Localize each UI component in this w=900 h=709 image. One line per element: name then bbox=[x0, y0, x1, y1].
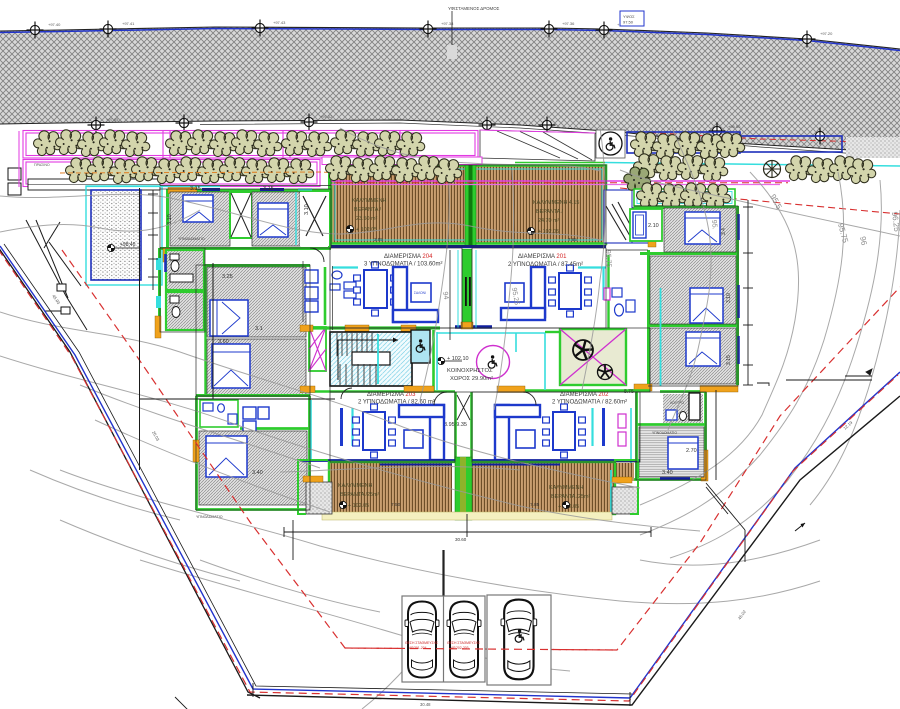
svg-text:3.1: 3.1 bbox=[255, 326, 263, 332]
svg-text:ΚΑΛΥΜΜΕΝΗ: ΚΑΛΥΜΜΕΝΗ bbox=[338, 483, 372, 489]
svg-text:+96.90: +96.90 bbox=[728, 124, 741, 129]
svg-text:3.25: 3.25 bbox=[222, 274, 233, 280]
svg-text:95.: 95. bbox=[710, 220, 718, 230]
svg-text:ΔΙΑΜΕΡΙΣΜΑ 204: ΔΙΑΜΕΡΙΣΜΑ 204 bbox=[384, 254, 433, 260]
svg-text:3.10: 3.10 bbox=[304, 204, 310, 215]
svg-text:3.60: 3.60 bbox=[218, 339, 229, 345]
svg-text:ΚΑΛΥΜΜΕΝΗ: ΚΑΛΥΜΜΕΝΗ bbox=[352, 198, 386, 204]
svg-text:30.48: 30.48 bbox=[420, 702, 431, 707]
svg-text:ΒΕΡΑΝΤΑ /25m²: ΒΕΡΑΝΤΑ /25m² bbox=[551, 494, 591, 500]
svg-text:94: 94 bbox=[441, 291, 449, 300]
svg-text:ΔΙΑΜΕΡΙΣΜΑ 201: ΔΙΑΜΕΡΙΣΜΑ 201 bbox=[518, 254, 567, 260]
svg-text:ΣΑΛΟΝΙ: ΣΑΛΟΝΙ bbox=[414, 291, 426, 295]
svg-text:+97.41: +97.41 bbox=[122, 21, 135, 26]
svg-text:2.10: 2.10 bbox=[648, 223, 659, 229]
svg-text:+97.20: +97.20 bbox=[820, 31, 833, 36]
svg-text:2 ΥΠΝΟΔΩΜΑΤΙΑ / 87.45m²: 2 ΥΠΝΟΔΩΜΑΤΙΑ / 87.45m² bbox=[508, 262, 583, 268]
svg-text:ΥΠΝΟΔΩΜΑΤΙΟ: ΥΠΝΟΔΩΜΑΤΙΟ bbox=[178, 237, 205, 241]
svg-text:+97.43: +97.43 bbox=[273, 20, 286, 25]
svg-text:7.85: 7.85 bbox=[530, 502, 540, 508]
svg-text:ΥΦΙΣΤΑΜΕΝΟΣ ΔΡΟΜΟΣ: ΥΦΙΣΤΑΜΕΝΟΣ ΔΡΟΜΟΣ bbox=[448, 6, 500, 11]
svg-text:ΛΟΥΤΡΟ: ΛΟΥΤΡΟ bbox=[670, 401, 684, 405]
svg-text:95.75: 95.75 bbox=[604, 250, 612, 268]
svg-text:2.70: 2.70 bbox=[686, 448, 697, 454]
svg-text:ΧΩΡΟΣ 29.90m²: ΧΩΡΟΣ 29.90m² bbox=[450, 376, 493, 382]
svg-text:+97.40: +97.40 bbox=[48, 22, 61, 27]
svg-text:23.50 m²: 23.50 m² bbox=[356, 216, 377, 222]
svg-text:+97.36: +97.36 bbox=[562, 21, 575, 26]
svg-text:3.10: 3.10 bbox=[726, 293, 732, 303]
svg-text:3.15: 3.15 bbox=[726, 355, 732, 365]
svg-text:ΥΠΝΟΔΩΜΑΤΙΟ: ΥΠΝΟΔΩΜΑΤΙΟ bbox=[652, 431, 677, 435]
svg-text:+ 102.10: + 102.10 bbox=[447, 356, 469, 362]
svg-text:3.40: 3.40 bbox=[662, 470, 673, 476]
svg-text:ΔΙΑΜΕΡΙΣΜΑ 202: ΔΙΑΜΕΡΙΣΜΑ 202 bbox=[560, 392, 609, 398]
svg-text:ΚΑΛΥΜΜΕΝΗ 4.15: ΚΑΛΥΜΜΕΝΗ 4.15 bbox=[533, 200, 579, 206]
svg-text:7.85: 7.85 bbox=[568, 237, 577, 242]
svg-text:3 ΥΠΝΟΔΩΜΑΤΙΑ / 103.60m²: 3 ΥΠΝΟΔΩΜΑΤΙΑ / 103.60m² bbox=[364, 262, 443, 268]
svg-text:ΠΡΑΣΙΝΟ: ΠΡΑΣΙΝΟ bbox=[34, 163, 50, 167]
svg-text:ΒΕΡΑΝΤΑ /: ΒΕΡΑΝΤΑ / bbox=[536, 209, 564, 215]
svg-text:+97.05: +97.05 bbox=[106, 117, 119, 122]
svg-text:YΨOΣ: YΨOΣ bbox=[623, 14, 635, 19]
svg-text:7.50: 7.50 bbox=[391, 502, 401, 508]
svg-text:ΒΕΡΑΝΤΑ /: ΒΕΡΑΝΤΑ / bbox=[354, 207, 382, 213]
svg-text:ΔΙΑΜΕΡΙΣΜΑ 203: ΔΙΑΜΕΡΙΣΜΑ 203 bbox=[367, 392, 416, 398]
svg-text:ΘΕΣΗ ΣΤΑΘΜΕΥΣΗΣ: ΘΕΣΗ ΣΤΑΘΜΕΥΣΗΣ bbox=[405, 641, 438, 645]
svg-text:ΘΕΣΗ ΣΤΑΘΜΕΥΣΗΣ: ΘΕΣΗ ΣΤΑΘΜΕΥΣΗΣ bbox=[447, 641, 480, 645]
svg-text:+ 102.05: + 102.05 bbox=[348, 503, 369, 509]
svg-text:3.4: 3.4 bbox=[721, 228, 727, 235]
svg-text:ΚΟΙΝΟΧΡΗΣΤΟΣ: ΚΟΙΝΟΧΡΗΣΤΟΣ bbox=[447, 368, 493, 374]
svg-text:ΚΑΛΥΜΜΕΝΗ: ΚΑΛΥΜΜΕΝΗ bbox=[549, 485, 583, 491]
svg-text:3.40: 3.40 bbox=[252, 470, 263, 476]
svg-text:+97.02: +97.02 bbox=[320, 114, 333, 119]
svg-text:+98.40: +98.40 bbox=[120, 242, 136, 248]
svg-text:24.70 m²: 24.70 m² bbox=[538, 218, 559, 224]
svg-text:30.60: 30.60 bbox=[455, 537, 467, 542]
svg-text:ΒΕΡΑΝΤΑ /25m²: ΒΕΡΑΝΤΑ /25m² bbox=[340, 492, 380, 498]
svg-text:97.50: 97.50 bbox=[623, 20, 634, 25]
svg-text:3.85: 3.85 bbox=[374, 237, 383, 242]
